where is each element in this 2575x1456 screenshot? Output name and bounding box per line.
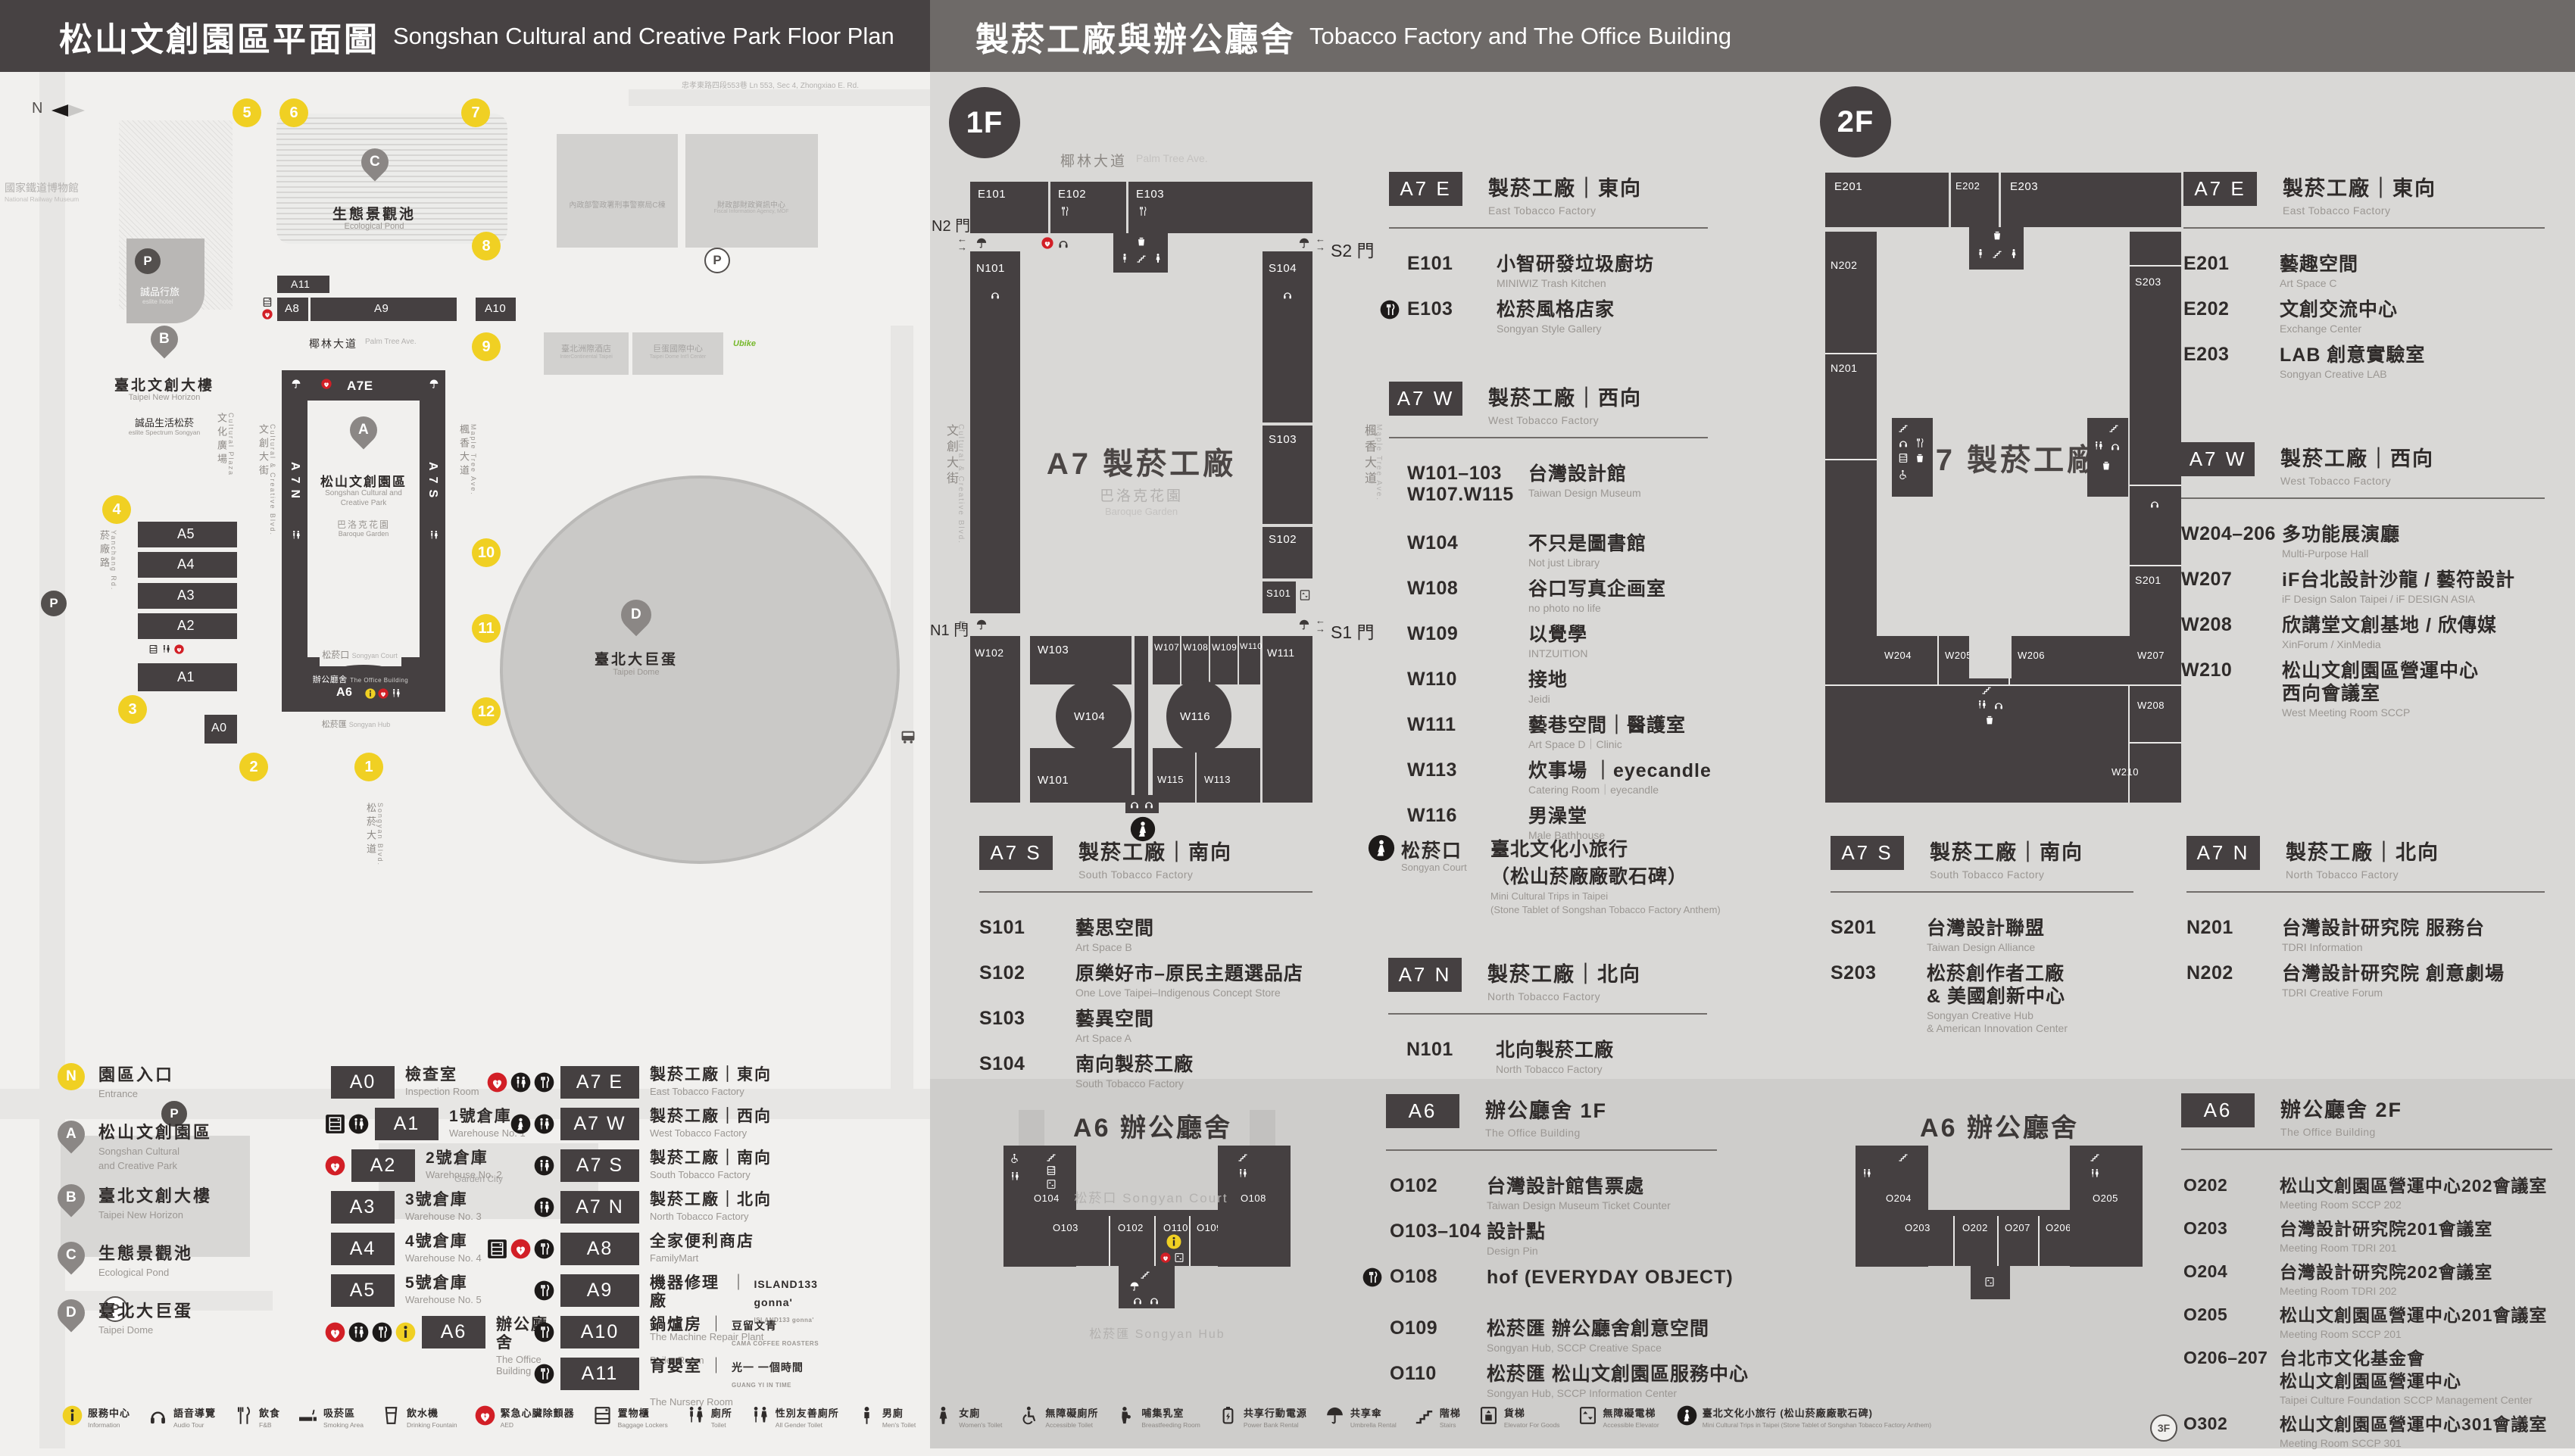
room-row: O202 松山文創園區營運中心202會議室Meeting Room SCCP 2… — [2183, 1174, 2552, 1211]
room-row: O205 松山文創園區營運中心201會議室Meeting Room SCCP 2… — [2183, 1304, 2552, 1341]
toilet-icon — [429, 530, 439, 541]
facility-item: 飲水機Drinking Fountain — [381, 1405, 457, 1429]
court-zh: 松菸口 — [1401, 836, 1462, 863]
legend-row-icons — [487, 1072, 554, 1093]
entrance-6: 6 — [279, 98, 308, 127]
f2-room-e202: E202 — [1951, 173, 1999, 227]
f1-room-e101: E101 — [970, 182, 1048, 233]
aed-icon — [174, 644, 184, 654]
f1-room-w104: W104 — [1056, 680, 1131, 753]
aed-icon — [1160, 1252, 1171, 1263]
section-title-zh: 製菸工廠｜東向 — [2283, 172, 2436, 201]
cup-icon — [381, 1405, 401, 1426]
gate-arrows: ←→ — [1316, 616, 1325, 633]
toilet-icon — [1010, 1171, 1020, 1182]
entrance-5: 5 — [233, 98, 261, 127]
place-pin: B — [52, 1179, 91, 1217]
f1-center-label: A7 製菸工廠 — [1047, 439, 1236, 483]
room-row: W108 谷口写真企画室no photo no life — [1407, 578, 1810, 615]
fork-c-icon — [534, 1280, 554, 1301]
zhongxiao-street-label: 忠孝東路四段553巷 Ln 553, Sec 4, Zhongxiao E. R… — [682, 79, 859, 90]
facility-icon — [148, 1405, 168, 1426]
facility-item: 無障礙廁所Accessible Toilet — [1019, 1405, 1098, 1429]
facility-item: 階梯Stairs — [1414, 1405, 1461, 1429]
room-row: N202 台灣設計研究院 創意劇場TDRI Creative Forum — [2186, 962, 2545, 999]
dome-label-en: Taipei Dome — [613, 668, 659, 677]
room-row: W110 接地Jeidi — [1407, 669, 1810, 706]
legend-row: A7 E 製菸工廠｜東向East Tobacco Factory — [497, 1066, 845, 1100]
facility-icon — [1414, 1405, 1434, 1426]
facility-icon — [685, 1405, 706, 1426]
place-pin: A — [52, 1115, 91, 1154]
entrance-4: 4 — [102, 495, 131, 524]
eslite-hotel-label-en: eslite hotel — [142, 298, 173, 305]
floor-3f-mini-badge: 3F — [2150, 1414, 2177, 1442]
room-row: O110 松菸匯 松山文創園區服務中心Songyan Hub, SCCP Inf… — [1390, 1363, 1810, 1400]
f1-baroque-zh: 巴洛克花園 — [1100, 485, 1183, 505]
stairs-icon — [2090, 1152, 2100, 1162]
locker-icon — [148, 644, 158, 654]
cultural-plaza-en: Cultural Plaza — [227, 413, 235, 476]
aed-icon — [325, 1155, 345, 1176]
facility-item: 女廁Women's Toilet — [933, 1405, 1002, 1429]
lift-icon — [1046, 1179, 1057, 1189]
section-badge: A7 E — [1389, 172, 1462, 206]
locker-c-icon — [325, 1114, 345, 1134]
legend-row: A7 N 製菸工廠｜北向North Tobacco Factory — [497, 1191, 845, 1225]
palm-ave-label-en: Palm Tree Ave. — [365, 338, 417, 346]
room-row: W111 藝巷空間｜醫護室Art Space D｜Clinic — [1407, 714, 1810, 751]
parking-icon: P — [704, 248, 730, 273]
locker-icon — [1898, 453, 1909, 463]
legend-row-icons — [534, 1280, 554, 1301]
headphone-icon — [1993, 700, 2004, 710]
toilet-icon — [291, 530, 301, 541]
section-title-en: North Tobacco Factory — [2286, 868, 2439, 881]
palm-ave-label-zh: 椰林大道 — [309, 336, 357, 351]
f2-icon-cluster-right — [2087, 418, 2128, 497]
f1-room-w108: W108 — [1181, 636, 1209, 684]
locker-c-icon — [487, 1239, 507, 1259]
toilet-c-icon — [534, 1114, 554, 1134]
room-row: E202 文創交流中心Exchange Center — [2183, 298, 2545, 335]
a6map1-court-label: 松菸口 Songyan Court — [1074, 1187, 1228, 1206]
f1-corridor — [1135, 636, 1148, 803]
f2-left-bar: N202 N201 — [1825, 232, 1877, 636]
gate-s2: S2 門 — [1331, 236, 1375, 262]
songyan-blvd-en: Songyan Blvd. — [376, 803, 384, 866]
room-row: O108 hof (EVERYDAY OBJECT) — [1390, 1266, 1810, 1290]
page-title-right-en: Tobacco Factory and The Office Building — [1309, 23, 1731, 50]
map-building-a10: A10 — [476, 298, 516, 321]
map-building-a3: A3 — [138, 583, 237, 609]
section-title-en: East Tobacco Factory — [1488, 204, 1642, 217]
toilet-icon — [1977, 700, 1987, 710]
npa-label: 內政部警政署刑事警察局C棟 — [569, 198, 665, 210]
section-title-en: East Tobacco Factory — [2283, 204, 2436, 217]
f1-room-s104: S104 — [1263, 251, 1312, 422]
map-a7s-label: A7S — [426, 462, 439, 504]
fork-c-icon — [534, 1322, 554, 1342]
bus-icon — [900, 728, 916, 745]
toilet-c-icon — [348, 1322, 369, 1342]
fork-c-icon — [372, 1322, 392, 1342]
toilet-icon — [685, 1405, 706, 1426]
f1-north-entrance — [1113, 233, 1168, 273]
court-en1: Mini Cultural Trips in Taipei — [1490, 890, 1608, 902]
place-pin: N — [58, 1063, 85, 1090]
section-badge: A7 W — [2181, 442, 2255, 476]
facility-icon — [857, 1405, 877, 1426]
trash-icon — [1984, 715, 1995, 725]
facility-item: 哺集乳室Breastfeeding Room — [1116, 1405, 1200, 1429]
aed-icon — [321, 379, 332, 389]
fork-c-icon — [534, 1364, 554, 1384]
dome-label-zh: 臺北大巨蛋 — [595, 648, 678, 669]
f1-room-e102: E102 — [1050, 182, 1126, 233]
f1-room-s101: S101 — [1263, 581, 1296, 613]
f1-creative-blvd-en: Cultural & Creative Blvd. — [957, 424, 965, 544]
room-row: S102 原樂好市–原民主題選品店One Love Taipei–Indigen… — [979, 962, 1366, 999]
fork-icon — [1915, 438, 1925, 448]
headphone-icon — [1898, 438, 1909, 448]
yanchang-rd-en: Yanchang Rd. — [110, 530, 117, 591]
headphone-icon — [1129, 799, 1140, 809]
a6map2-south-stub — [1971, 1266, 2010, 1299]
court-icon — [1368, 834, 1395, 862]
headphone-icon — [990, 289, 1000, 300]
room-row: S103 藝異空間Art Space A — [979, 1008, 1366, 1045]
facility-item: 貨梯Elevator For Goods — [1478, 1405, 1560, 1429]
section-title-en: The Office Building — [2280, 1126, 2402, 1138]
legend-row-icons — [510, 1114, 554, 1134]
facility-icon — [298, 1405, 318, 1426]
stairs-icon — [1992, 248, 2002, 259]
a6map1-stub-left — [1019, 1110, 1044, 1148]
woman-icon — [1153, 253, 1163, 263]
headphone-icon — [1282, 289, 1293, 300]
parking-icon: P — [41, 591, 67, 616]
place-pin: C — [52, 1236, 91, 1275]
facility-icon — [1578, 1405, 1598, 1426]
f1-room-w103: W103 — [1030, 636, 1131, 684]
gate-arrows: ←→ — [957, 235, 967, 251]
f1-room-w107: W107 — [1153, 636, 1180, 684]
info-icon — [365, 688, 376, 699]
legend-row: A11 育嬰室｜光一 一個時間GUANG YI IN TIMEThe Nurse… — [497, 1358, 845, 1392]
legend-place-row: A 松山文創園區Songshan Culturaland Creative Pa… — [58, 1119, 307, 1172]
new-horizon-label-en: Taipei New Horizon — [129, 393, 201, 402]
f1-room-s103: S103 — [1263, 426, 1312, 524]
map-building-a2: A2 — [138, 613, 237, 639]
facility-icon — [1116, 1405, 1136, 1426]
map-building-a6-wing-right — [401, 657, 424, 669]
a6map2-wing-right: O205 — [2070, 1146, 2143, 1267]
a6map1-wing-right: O108 — [1218, 1146, 1291, 1267]
facility-item: 緊急心臟除顫器AED — [475, 1405, 575, 1429]
section-title-zh: 辦公廳舍 1F — [1485, 1094, 1607, 1124]
f1-room-w113: W113 — [1197, 748, 1260, 803]
f1-palm-ave-zh: 椰林大道 — [1060, 150, 1127, 170]
woman-icon — [2008, 248, 2019, 259]
headphone-icon — [148, 1405, 168, 1426]
facility-item: 男廁Men's Toilet — [857, 1405, 916, 1429]
headphone-icon — [1057, 237, 1069, 249]
floor-1f-badge: 1F — [949, 87, 1020, 158]
room-row: O109 松菸匯 辦公廳舍創意空間Songyan Hub, SCCP Creat… — [1390, 1317, 1810, 1355]
headphone-icon — [2149, 498, 2160, 509]
room-row: S203 松菸創作者工廠& 美國創新中心Songyan Creative Hub… — [1831, 962, 2168, 1035]
toilet-c-icon — [348, 1114, 369, 1134]
section-f1-a7e: A7 E 製菸工廠｜東向East Tobacco Factory E101 小智… — [1389, 172, 1810, 344]
facility-icon — [1325, 1405, 1345, 1426]
locker-icon — [592, 1405, 613, 1426]
a6map1-hub-label: 松菸匯 Songyan Hub — [1089, 1323, 1225, 1342]
trash-icon — [1992, 230, 2002, 241]
eslite-spectrum-label-en: eslite Spectrum Songyan — [129, 429, 201, 436]
section-f1-a7w: A7 W 製菸工廠｜西向West Tobacco Factory W101–10… — [1389, 382, 1810, 850]
road-top-lane — [629, 89, 930, 106]
f1-south-stub — [1125, 795, 1159, 813]
stairs-icon — [1046, 1152, 1057, 1162]
map-building-a1: A1 — [138, 663, 237, 691]
aed-icon — [475, 1405, 495, 1426]
f1-room-w109: W109 — [1210, 636, 1238, 684]
legend-row: A9 機器修理廠｜ISLAND133 gonna'ISLAND133 gonna… — [497, 1274, 845, 1308]
fia-label-zh: 財政部財政資訊中心 — [717, 198, 785, 210]
legend-row-icons — [534, 1155, 554, 1176]
facility-item: 服務中心Information — [62, 1405, 130, 1429]
section-title-zh: 製菸工廠｜北向 — [1487, 958, 1641, 987]
umbrella-icon — [975, 237, 988, 249]
room-row: E201 藝趣空間Art Space C — [2183, 253, 2545, 290]
legend-buildings-2: A7 E 製菸工廠｜東向East Tobacco Factory A7 W 製菸… — [497, 1066, 845, 1399]
entrance-2: 2 — [239, 753, 268, 781]
toilet-c-icon — [510, 1072, 531, 1093]
gate-s1: S1 門 — [1331, 618, 1375, 644]
facility-item: 語音導覽Audio Tour — [148, 1405, 216, 1429]
fork-icon — [1138, 206, 1148, 217]
room-row: O204 台灣設計研究院202會議室Meeting Room TDRI 202 — [2183, 1261, 2552, 1298]
room-row: S101 藝思空間Art Space B — [979, 917, 1366, 954]
pin-a: A — [345, 411, 383, 450]
npa-building — [557, 134, 678, 248]
umbrella-icon — [975, 619, 988, 631]
gate-n1: N1 門 — [930, 618, 969, 640]
section-f2-a7e: A7 E 製菸工廠｜東向East Tobacco Factory E201 藝趣… — [2183, 172, 2545, 389]
entrance-7: 7 — [461, 98, 490, 127]
header-left: 松山文創園區平面圖 Songshan Cultural and Creative… — [0, 0, 930, 72]
entrance-8: 8 — [472, 232, 501, 260]
parking-icon-eslite: P — [135, 248, 161, 274]
f1-room-w101: W101 — [1030, 748, 1131, 803]
fia-label-en: Fiscal Information Agency, MOF — [713, 209, 788, 214]
eslite-spectrum-label-zh: 誠品生活松菸 — [135, 415, 194, 429]
fork-c-icon — [534, 1072, 554, 1093]
baroque-garden-zh: 巴洛克花園 — [337, 518, 390, 531]
pond-label-zh: 生態景觀池 — [332, 203, 416, 223]
map-building-a8: A8 — [277, 298, 308, 321]
maple-ave-en: Maple Tree Ave. — [470, 424, 477, 496]
entrance-12: 12 — [472, 697, 501, 726]
map-a7e-label: A7E — [347, 379, 373, 394]
umbrella-icon — [429, 379, 439, 389]
gate-n2: N2 門 — [932, 214, 970, 235]
a6map1-south-stub — [1119, 1266, 1175, 1308]
page-title-right-zh: 製菸工廠與辦公廳舍 — [975, 12, 1296, 61]
f1-room-n101: N101 — [970, 251, 1020, 613]
section-badge: A7 S — [1831, 836, 1904, 870]
railway-museum-label-zh: 國家鐵道博物館 — [5, 180, 79, 195]
court-en: Songyan Court — [1401, 862, 1467, 873]
domectr-label-en: Taipei Dome Int'l Center — [650, 354, 706, 360]
headphone-icon — [1132, 1295, 1143, 1305]
facility-icon — [381, 1405, 401, 1426]
legend-row-icons — [325, 1322, 416, 1342]
baroque-garden-en: Baroque Garden — [339, 530, 389, 538]
room-row: W113 炊事場 ｜eyecandleCatering Room｜eyecand… — [1407, 759, 1810, 797]
pond-label-en: Ecological Pond — [345, 222, 404, 231]
f2-bottom-band: W204 W205 W206 W207 W208 W210 — [1825, 636, 2181, 803]
toilet-icon — [2090, 1168, 2100, 1179]
room-row: N201 台灣設計研究院 服務台TDRI Information — [2186, 917, 2545, 954]
map-building-a5: A5 — [138, 522, 237, 547]
legend-row-icons — [534, 1364, 554, 1384]
icc-label-zh: 臺北洲際酒店 — [561, 342, 611, 354]
man-icon — [857, 1405, 877, 1426]
taipei-dome-shape — [500, 475, 900, 864]
woman-icon — [933, 1405, 954, 1426]
room-row: E203 LAB 創意實驗室Songyan Creative LAB — [2183, 344, 2545, 381]
a6-office-label: 辦公廳舍 The Office Building — [313, 673, 409, 685]
map-building-a6-wing-left — [297, 657, 320, 669]
legend-place-row: B 臺北文創大樓Taipei New Horizon — [58, 1183, 307, 1230]
umbrella-icon — [1298, 237, 1310, 249]
section-title-en: West Tobacco Factory — [1488, 414, 1642, 426]
room-row: W207 iF台北設計沙龍 / 藝符設計iF Design Salon Taip… — [2181, 569, 2545, 606]
room-row: W101–103W107.W115 台灣設計館Taiwan Design Mus… — [1407, 463, 1810, 505]
allgender-icon — [750, 1405, 770, 1426]
cigarette-icon — [298, 1405, 318, 1426]
room-row: E103 松菸風格店家Songyan Style Gallery — [1407, 298, 1810, 335]
breastfeeding-icon — [1116, 1405, 1136, 1426]
facility-icon — [1019, 1405, 1040, 1426]
legend-place-row: N 園區入口Entrance — [58, 1062, 307, 1108]
locker-icon — [262, 297, 273, 307]
entrance-11: 11 — [472, 614, 501, 643]
powerbank-icon — [1218, 1405, 1238, 1426]
section-title-zh: 製菸工廠｜南向 — [1930, 836, 2083, 865]
fork-c-icon — [534, 1239, 554, 1259]
facility-item: 吸菸區Smoking Area — [298, 1405, 364, 1429]
a6map1-title: A6 辦公廳舍 — [1073, 1107, 1232, 1144]
court-line1: 臺北文化小旅行 — [1490, 834, 1628, 862]
facility-item: 廁所Toilet — [685, 1405, 732, 1429]
f1-room-s102: S102 — [1263, 527, 1312, 578]
wheelchair-icon — [1019, 1405, 1040, 1426]
stairs-icon — [2108, 422, 2119, 433]
section-f1-a7s: A7 S 製菸工廠｜南向South Tobacco Factory S101 藝… — [979, 836, 1366, 1099]
fia-building — [685, 134, 818, 248]
legend-row-icons — [534, 1197, 554, 1217]
f2-room-e203: E203 — [2001, 173, 2181, 227]
stairs-icon — [1898, 1152, 1909, 1162]
section-badge: A7 E — [2183, 172, 2257, 206]
icc-label-en: InterContinental Taipei — [560, 354, 613, 360]
map-building-a6: 辦公廳舍 The Office Building A6 — [289, 669, 431, 706]
a6map1-stub-right — [1250, 1110, 1275, 1148]
legend-row: A7 S 製菸工廠｜南向South Tobacco Factory — [497, 1149, 845, 1183]
legend-places: N 園區入口Entrance A 松山文創園區Songshan Cultural… — [58, 1062, 307, 1355]
section-f2-a7w: A7 W 製菸工廠｜西向West Tobacco Factory W204–20… — [2181, 442, 2545, 728]
row-icons — [1380, 300, 1400, 320]
legend-row-icons — [325, 1114, 369, 1134]
court-en2: (Stone Tablet of Songshan Tobacco Factor… — [1490, 904, 1721, 915]
facility-icon — [1677, 1405, 1697, 1426]
room-row: W208 欣講堂文創基地 / 欣傳媒XinForum / XinMedia — [2181, 614, 2545, 651]
facility-item: 飲食F&B — [233, 1405, 280, 1429]
facility-item: 共享行動電源Power Bank Rental — [1218, 1405, 1307, 1429]
park-court-label: 松菸口 Songyan Court — [322, 648, 397, 661]
fork-c-icon — [1362, 1267, 1382, 1287]
facility-icon — [750, 1405, 770, 1426]
toilet-icon — [2093, 441, 2104, 451]
map-building-a11: A11 — [277, 276, 329, 293]
map-a7n-label: A7N — [288, 462, 301, 504]
section-title-zh: 製菸工廠｜西向 — [1488, 382, 1642, 411]
section-f1-a7n: A7 N 製菸工廠｜北向North Tobacco Factory N101 北… — [1388, 958, 1809, 1084]
court-icon — [510, 1114, 531, 1134]
trash-icon — [2101, 460, 2111, 471]
toilet-c-icon — [534, 1197, 554, 1217]
trash-icon — [1915, 453, 1925, 463]
f2-icon-cluster-left — [1892, 418, 1933, 497]
f1-room-w110: W110 — [1239, 636, 1260, 684]
map-building-a9: A9 — [311, 298, 457, 321]
man-icon — [1119, 253, 1130, 263]
toilet-icon — [161, 644, 171, 654]
f2-north-entrance — [1969, 227, 2024, 270]
room-row: E101 小智研發垃圾廚坊MINIWIZ Trash Kitchen — [1407, 253, 1810, 290]
room-row: O102 台灣設計館售票處Taiwan Design Museum Ticket… — [1390, 1175, 1810, 1212]
aed-icon — [1041, 237, 1053, 249]
umbrella-icon — [1129, 1281, 1140, 1292]
section-title-zh: 辦公廳舍 2F — [2280, 1093, 2402, 1123]
facility-icon — [233, 1405, 254, 1426]
section-badge: A7 S — [979, 836, 1053, 870]
facility-icon — [933, 1405, 954, 1426]
park-name-en2: Creative Park — [341, 499, 387, 507]
locker-icon — [1046, 1165, 1057, 1176]
room-row: W109 以覺學INTZUITION — [1407, 623, 1810, 660]
lift-icon — [1174, 1252, 1184, 1263]
info-icon — [395, 1322, 416, 1342]
facility-item: 共享傘Umbrella Rental — [1325, 1405, 1397, 1429]
room-row: N101 北向製菸工廠North Tobacco Factory — [1406, 1039, 1809, 1076]
room-row: 3F O302 松山文創園區營運中心301會議室Meeting Room SCC… — [2183, 1413, 2552, 1450]
f1-room-w116: W116 — [1166, 680, 1231, 753]
gate-arrows: ←→ — [1316, 235, 1325, 251]
legend-row-icons — [534, 1322, 554, 1342]
page-title-left-zh: 松山文創園區平面圖 — [59, 12, 379, 61]
section-badge: A6 — [2181, 1093, 2255, 1127]
aed-icon — [378, 688, 389, 699]
row-icons — [1362, 1267, 1382, 1287]
stairs-icon — [1414, 1405, 1434, 1426]
legend-row-icons — [325, 1155, 345, 1176]
railway-museum-label-en: National Railway Museum — [5, 195, 79, 203]
room-row: O206–207 台北市文化基金會松山文創園區營運中心Taipei Cultur… — [2183, 1347, 2552, 1407]
